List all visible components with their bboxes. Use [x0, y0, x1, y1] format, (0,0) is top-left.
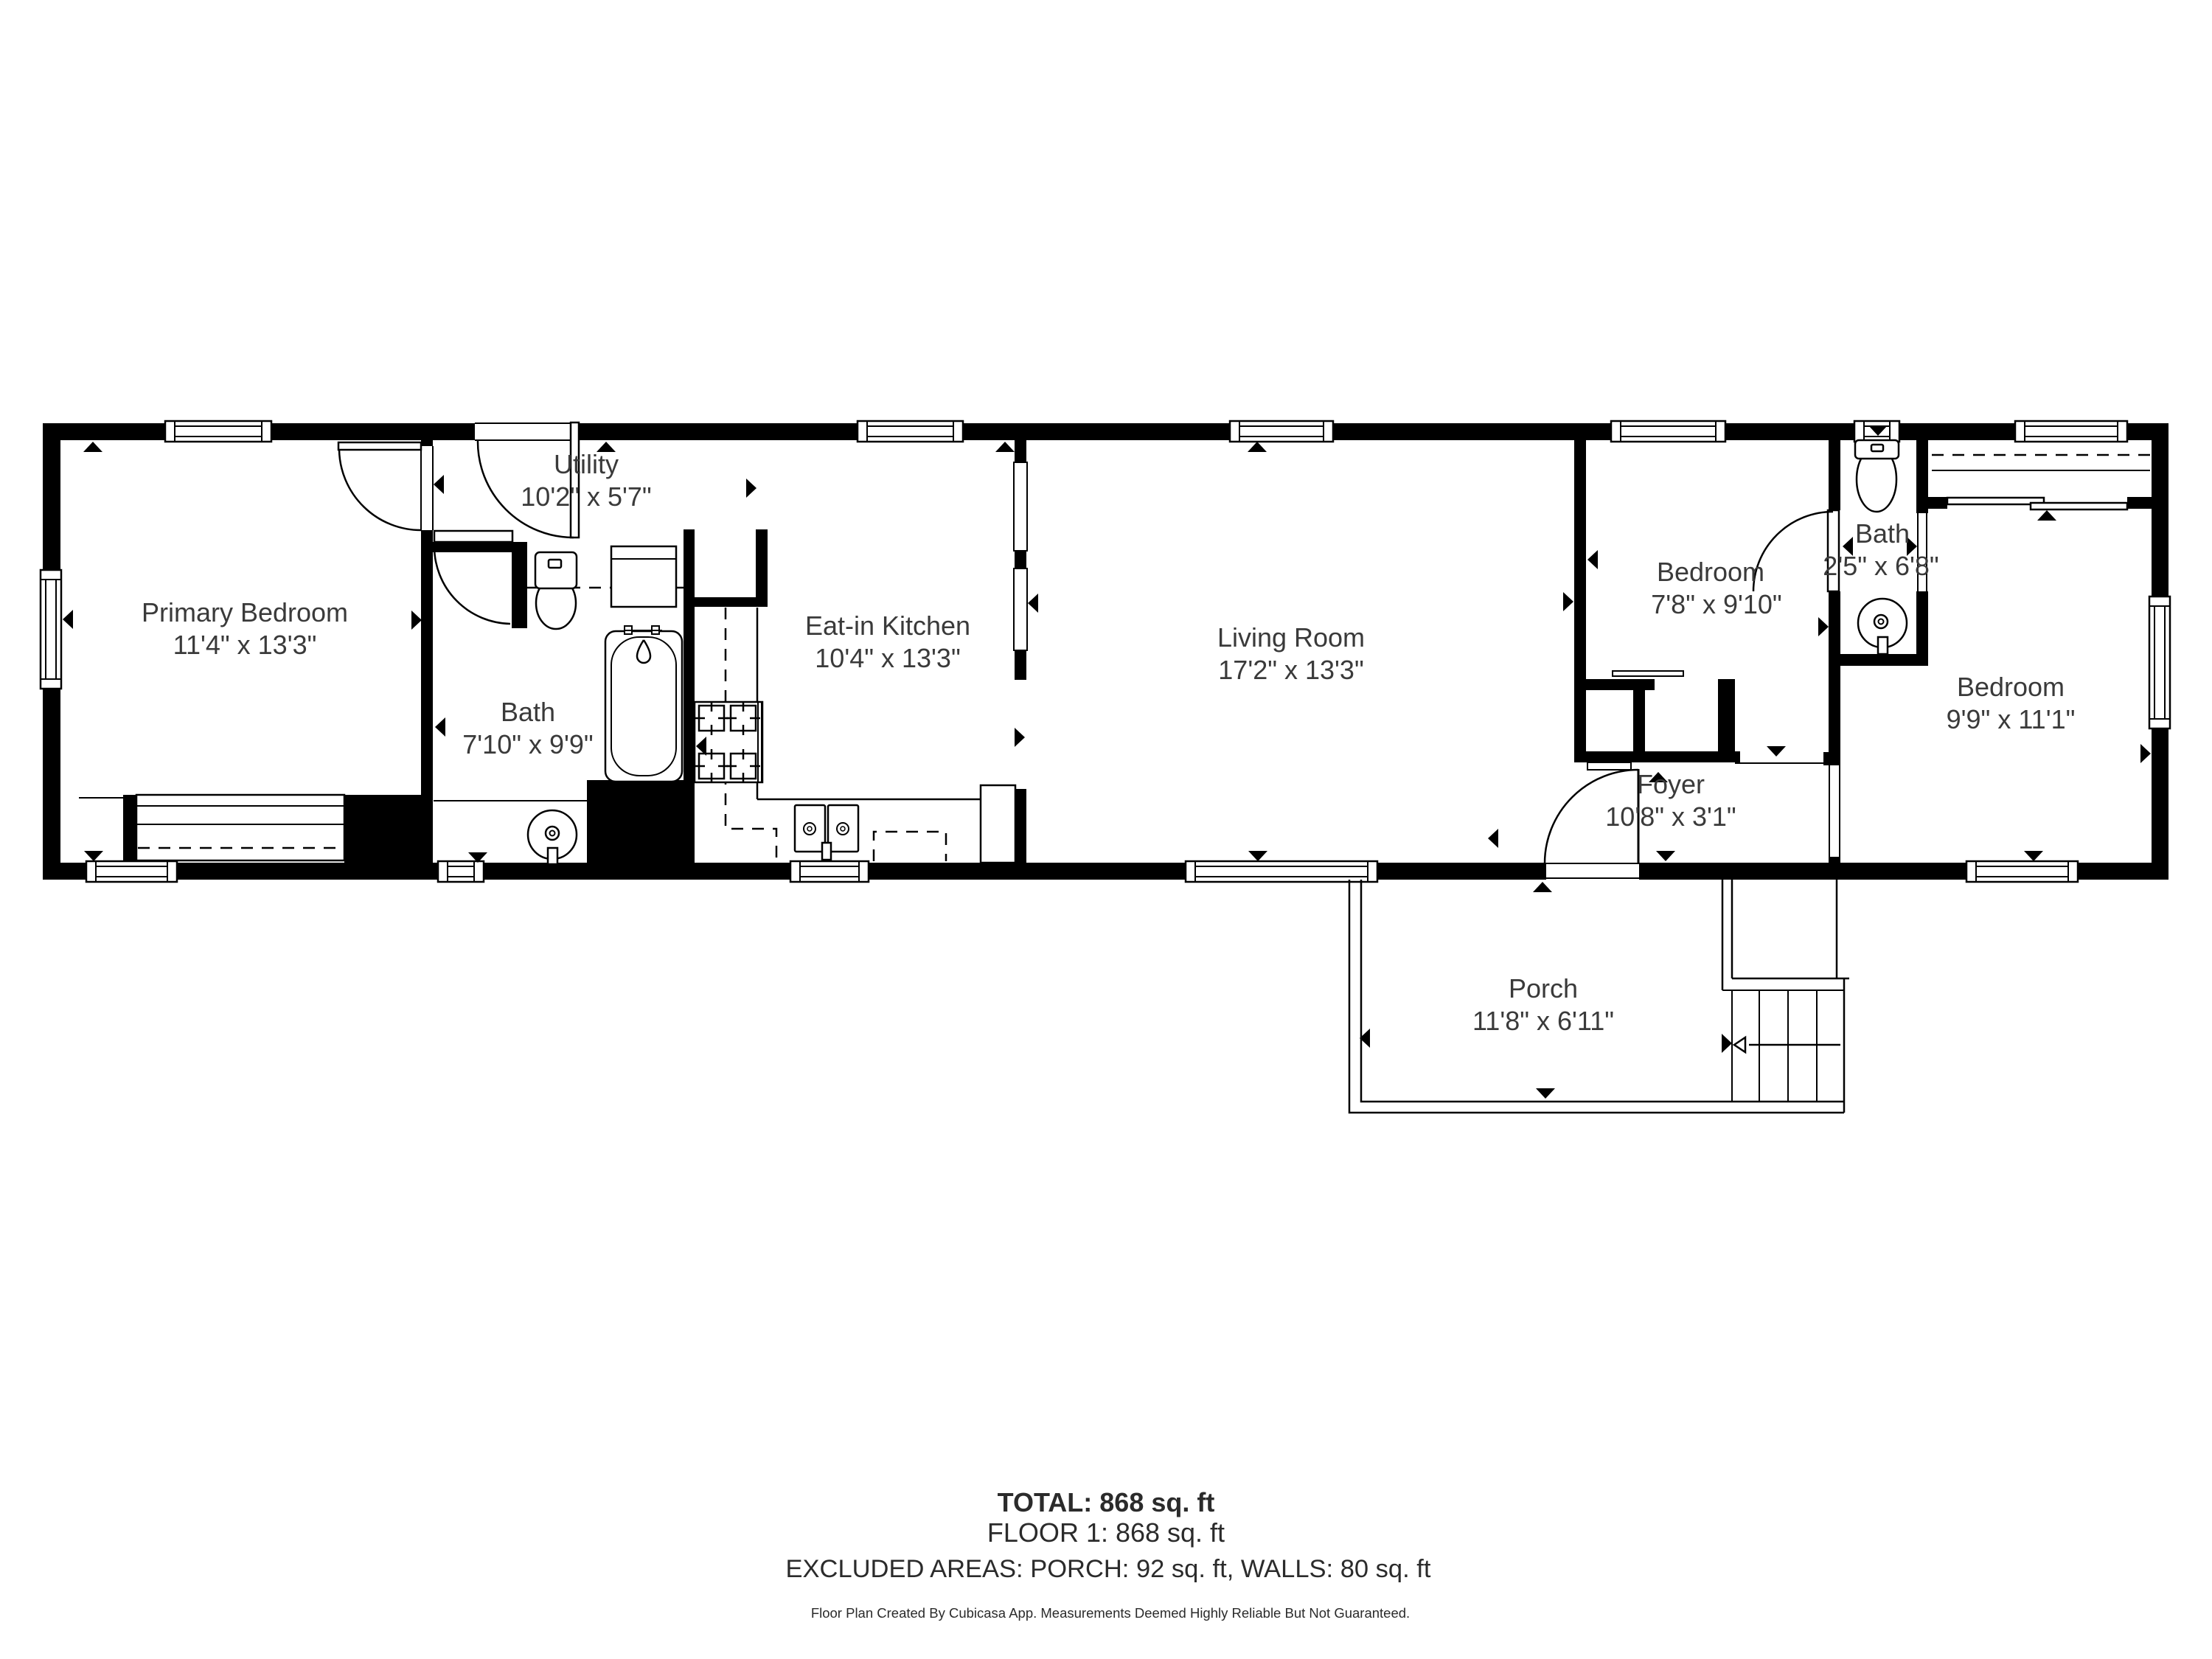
svg-text:Bedroom: Bedroom — [1657, 557, 1764, 587]
svg-text:Bath: Bath — [1855, 518, 1910, 549]
svg-text:Utility: Utility — [554, 449, 619, 479]
svg-text:2'5" x 6'8": 2'5" x 6'8" — [1823, 551, 1938, 581]
svg-text:10'2" x 5'7": 10'2" x 5'7" — [521, 481, 651, 512]
svg-text:Bath: Bath — [501, 697, 555, 727]
svg-text:TOTAL: 868 sq. ft: TOTAL: 868 sq. ft — [998, 1487, 1215, 1517]
svg-text:EXCLUDED AREAS: PORCH: 92 sq.: EXCLUDED AREAS: PORCH: 92 sq. ft, WALLS:… — [786, 1555, 1431, 1583]
svg-text:9'9" x 11'1": 9'9" x 11'1" — [1947, 704, 2076, 734]
svg-text:11'8" x 6'11": 11'8" x 6'11" — [1472, 1006, 1614, 1036]
svg-text:10'4" x 13'3": 10'4" x 13'3" — [815, 643, 960, 673]
svg-text:Porch: Porch — [1509, 973, 1578, 1004]
svg-text:FLOOR 1: 868 sq. ft: FLOOR 1: 868 sq. ft — [987, 1517, 1225, 1548]
svg-text:Foyer: Foyer — [1637, 769, 1705, 799]
svg-text:7'8" x 9'10": 7'8" x 9'10" — [1651, 589, 1781, 619]
svg-text:10'8" x 3'1": 10'8" x 3'1" — [1605, 801, 1736, 832]
svg-text:17'2" x 13'3": 17'2" x 13'3" — [1218, 655, 1363, 685]
svg-text:Bedroom: Bedroom — [1957, 672, 2065, 702]
svg-text:Eat-in Kitchen: Eat-in Kitchen — [805, 611, 970, 641]
svg-text:Living Room: Living Room — [1217, 622, 1365, 653]
svg-text:Primary Bedroom: Primary Bedroom — [142, 597, 348, 627]
svg-text:Floor Plan Created By Cubicasa: Floor Plan Created By Cubicasa App. Meas… — [811, 1605, 1410, 1621]
svg-text:11'4" x 13'3": 11'4" x 13'3" — [173, 630, 317, 660]
svg-text:7'10" x 9'9": 7'10" x 9'9" — [462, 729, 593, 759]
